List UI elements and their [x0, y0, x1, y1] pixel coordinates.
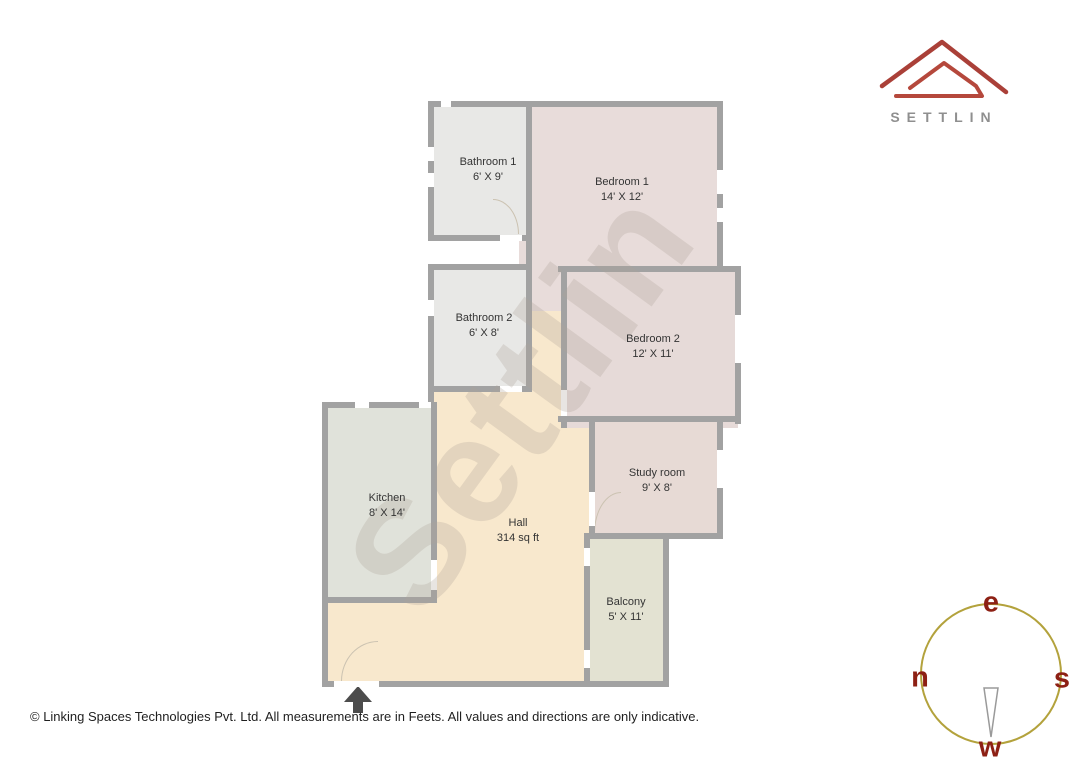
room-dims: 12' X 11' — [626, 347, 680, 362]
room-name: Study room — [629, 466, 685, 481]
compass-west: w — [979, 734, 1002, 763]
door-window-opening — [735, 315, 741, 363]
room-name: Hall — [497, 516, 539, 531]
door-window-opening — [584, 650, 590, 668]
room-dims: 314 sq ft — [497, 531, 539, 546]
floorplan-page: Settlin Bathroom 1 6' X 9' Bedroom 1 14'… — [0, 0, 1080, 764]
room-name: Bathroom 2 — [456, 311, 513, 326]
wall-segment — [428, 264, 532, 270]
wall-segment — [428, 264, 434, 408]
room-dims: 14' X 12' — [595, 190, 649, 205]
label-balcony: Balcony 5' X 11' — [606, 595, 645, 625]
wall-segment — [526, 101, 532, 392]
door-window-opening — [334, 681, 379, 687]
wall-segment — [663, 533, 669, 687]
room-name: Kitchen — [369, 491, 406, 506]
door-window-opening — [428, 173, 434, 187]
door-window-opening — [717, 450, 723, 488]
label-bathroom1: Bathroom 1 6' X 9' — [460, 155, 517, 185]
door-window-opening — [419, 402, 431, 408]
door-window-opening — [431, 560, 437, 590]
room-name: Balcony — [606, 595, 645, 610]
compass-north: n — [911, 664, 929, 693]
room-name: Bedroom 1 — [595, 175, 649, 190]
compass-south: s — [1054, 665, 1070, 694]
label-hall: Hall 314 sq ft — [497, 516, 539, 546]
entrance-arrow-head — [344, 686, 372, 702]
door-window-opening — [561, 390, 567, 416]
door-window-opening — [717, 170, 723, 194]
room-dims: 9' X 8' — [629, 481, 685, 496]
wall-segment — [558, 416, 741, 422]
door-window-opening — [428, 147, 434, 161]
door-window-opening — [355, 402, 369, 408]
settlin-logo: SETTLIN — [876, 28, 1012, 125]
wall-segment — [584, 533, 723, 539]
door-window-opening — [584, 548, 590, 566]
label-bathroom2: Bathroom 2 6' X 8' — [456, 311, 513, 341]
room-dims: 5' X 11' — [606, 610, 645, 625]
wall-segment — [558, 266, 741, 272]
label-bedroom2: Bedroom 2 12' X 11' — [626, 332, 680, 362]
label-studyroom: Study room 9' X 8' — [629, 466, 685, 496]
room-dims: 6' X 9' — [460, 170, 517, 185]
label-kitchen: Kitchen 8' X 14' — [369, 491, 406, 521]
room-name: Bedroom 2 — [626, 332, 680, 347]
wall-segment — [428, 101, 723, 107]
brand-name: SETTLIN — [876, 109, 1012, 125]
door-window-opening — [500, 235, 522, 241]
room-dims: 8' X 14' — [369, 506, 406, 521]
door-window-opening — [589, 492, 595, 526]
label-bedroom1: Bedroom 1 14' X 12' — [595, 175, 649, 205]
door-window-opening — [441, 101, 451, 107]
settlin-logo-icon — [876, 28, 1012, 100]
wall-segment — [322, 402, 328, 687]
compass-east: e — [983, 589, 999, 618]
door-window-opening — [500, 386, 522, 392]
footer-note: © Linking Spaces Technologies Pvt. Ltd. … — [30, 709, 699, 724]
compass: e n s w — [920, 603, 1062, 745]
wall-segment — [322, 597, 437, 603]
door-window-opening — [717, 208, 723, 222]
room-name: Bathroom 1 — [460, 155, 517, 170]
room-dims: 6' X 8' — [456, 326, 513, 341]
wall-segment — [428, 101, 434, 241]
door-window-opening — [428, 300, 434, 316]
